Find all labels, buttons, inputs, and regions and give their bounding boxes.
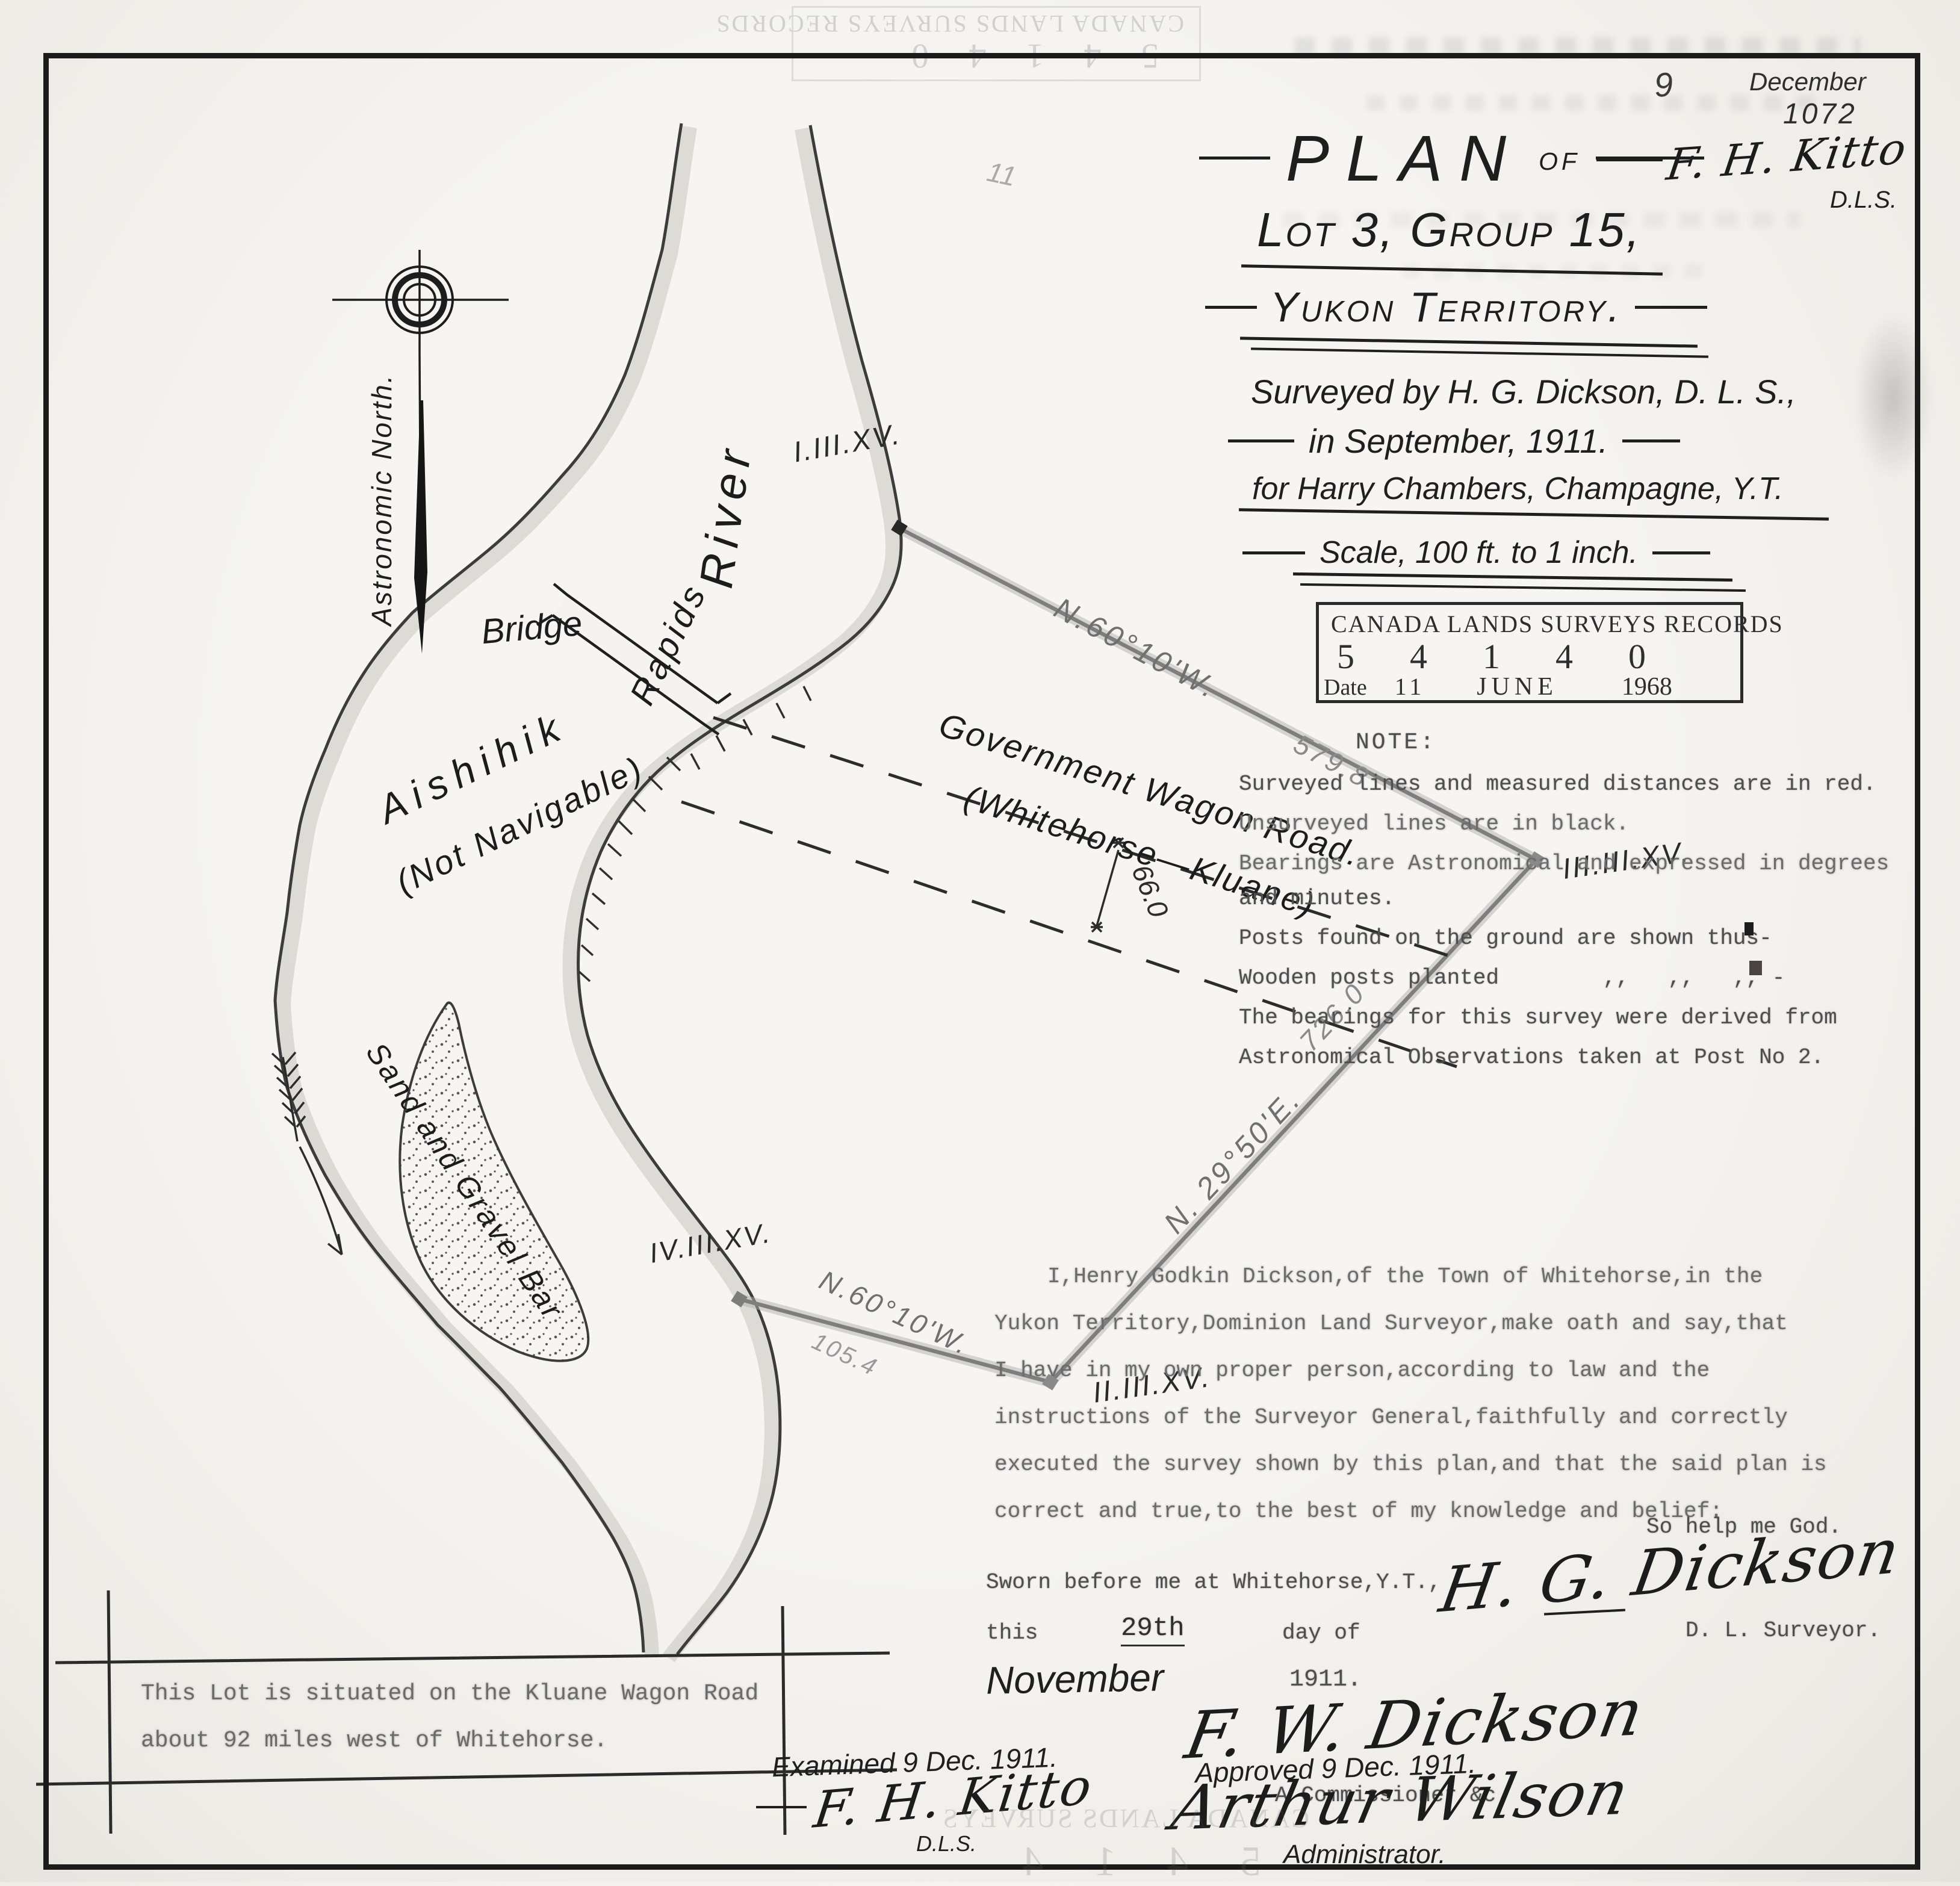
ghost-stamp-bottom-title: CANADA LANDS SURVEYS	[941, 1803, 1309, 1834]
clsr-date-day: 11	[1395, 672, 1425, 701]
sworn-line1: Sworn before me at Whitehorse,Y.T.,	[986, 1570, 1441, 1595]
title-territory: Yukon Territory.	[1270, 283, 1622, 331]
note-line: Wooden posts planted ,, ,, ,, -	[1239, 966, 1785, 990]
ghost-stamp-bottom: CANADA LANDS SURVEYS 5 4 1 4	[900, 1803, 1315, 1881]
surveyor-signature-title: D. L. Surveyor.	[1686, 1618, 1881, 1643]
location-note-line: about 92 miles west of Whitehorse.	[141, 1728, 607, 1754]
title-plan: PLAN	[1286, 120, 1523, 196]
clsr-date-month: JUNE	[1477, 672, 1558, 701]
planted-post-symbol	[1749, 961, 1762, 975]
clsr-stamp-number: 5 4 1 4 0	[1337, 636, 1646, 677]
note-line: The bearings for this survey were derive…	[1239, 1005, 1837, 1030]
affidavit-line: executed the survey shown by this plan,a…	[994, 1452, 1827, 1477]
note-heading: NOTE:	[1356, 730, 1436, 755]
note-line: and minutes.	[1239, 886, 1395, 911]
title-scale: Scale, 100 ft. to 1 inch.	[1320, 535, 1638, 571]
pencil-number: 9	[1653, 64, 1675, 105]
title-scale-row: Scale, 100 ft. to 1 inch.	[1242, 535, 1710, 571]
sworn-this: this	[986, 1621, 1038, 1645]
affidavit-line: Yukon Territory,Dominion Land Surveyor,m…	[994, 1311, 1788, 1336]
clsr-date-year: 1968	[1622, 672, 1672, 701]
title-date: in September, 1911.	[1309, 421, 1608, 461]
clsr-digit: 4	[1555, 636, 1573, 677]
clsr-digit: 1	[1483, 636, 1500, 677]
note-line: Astronomical Observations taken at Post …	[1239, 1045, 1824, 1070]
note-line: Unsurveyed lines are in black.	[1239, 811, 1629, 836]
clsr-stamp-box: CANADA LANDS SURVEYS RECORDS 5 4 1 4 0 D…	[1316, 602, 1743, 703]
title-lot-line: Lot 3, Group 15,	[1257, 202, 1642, 258]
affidavit-line: I have in my own proper person,according…	[994, 1358, 1710, 1383]
kitto-signature-title: D.L.S.	[1830, 187, 1897, 214]
affidavit-line: correct and true,to the best of my knowl…	[994, 1499, 1723, 1524]
sworn-day: 29th	[1121, 1613, 1185, 1646]
note-line: Bearings are Astronomical and expressed …	[1239, 851, 1889, 876]
clsr-stamp-date-row: Date 11 JUNE 1968	[1324, 672, 1672, 701]
clsr-stamp-title: CANADA LANDS SURVEYS RECORDS	[1331, 610, 1784, 638]
clsr-digit: 5	[1337, 636, 1354, 677]
note-line: Posts found on the ground are shown thus…	[1239, 926, 1772, 951]
ghost-stamp-bottom-digits: 5 4 1 4	[1002, 1838, 1262, 1886]
found-post-symbol	[1744, 922, 1754, 935]
sworn-month: November	[985, 1655, 1164, 1702]
affidavit-line: instructions of the Surveyor General,fai…	[994, 1405, 1788, 1430]
title-client-line: for Harry Chambers, Champagne, Y.T.	[1252, 471, 1784, 507]
pencil-file-number: 1072	[1783, 98, 1857, 131]
clsr-digit: 4	[1410, 636, 1427, 677]
note-line: Surveyed lines and measured distances ar…	[1239, 772, 1876, 796]
examined-dash	[756, 1806, 807, 1808]
clsr-date-label: Date	[1324, 674, 1367, 701]
location-note-line: This Lot is situated on the Kluane Wagon…	[141, 1681, 758, 1707]
affidavit-line: I,Henry Godkin Dickson,of the Town of Wh…	[1047, 1264, 1763, 1289]
sworn-day-of: day of	[1282, 1621, 1360, 1645]
title-of: of	[1539, 138, 1580, 178]
title-date-row: in September, 1911.	[1228, 421, 1680, 461]
title-territory-row: Yukon Territory.	[1205, 283, 1707, 331]
clsr-digit: 0	[1628, 636, 1646, 677]
title-surveyed-line: Surveyed by H. G. Dickson, D. L. S.,	[1251, 372, 1796, 411]
sworn-year: 1911.	[1289, 1666, 1362, 1693]
pencil-month: December	[1749, 67, 1866, 96]
title-plan-row: PLAN of	[1199, 120, 1704, 196]
